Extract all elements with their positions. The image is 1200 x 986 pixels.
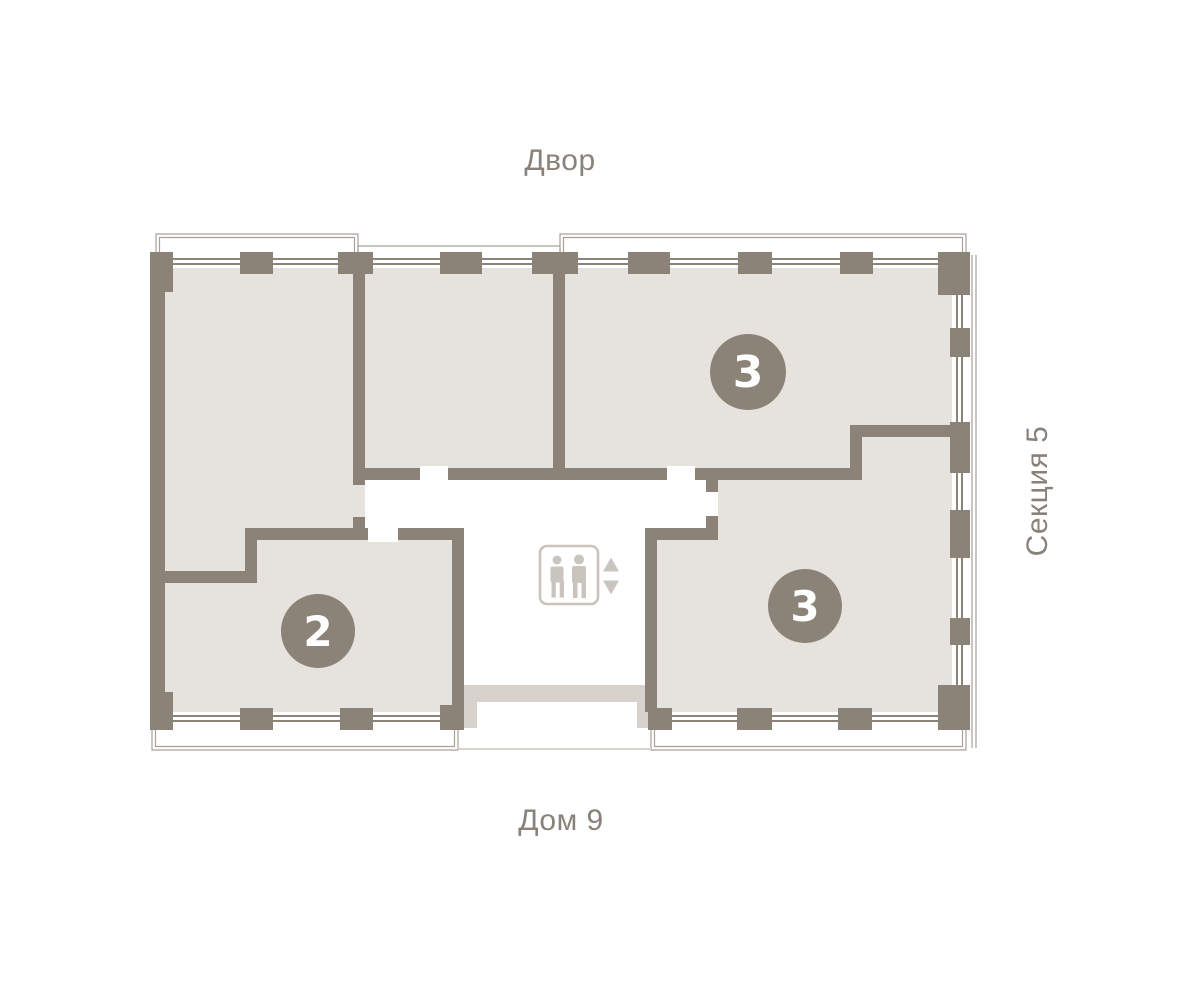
courtyard-label: Двор — [524, 144, 595, 178]
floorplan-page: 3 2 3 Двор Дом 9 Секция 5 — [0, 0, 1200, 986]
apartment-badge-2-bottom-left[interactable]: 2 — [281, 594, 355, 668]
house-label: Дом 9 — [518, 804, 603, 838]
section-label: Секция 5 — [1021, 426, 1055, 557]
floorplan-drawing — [0, 0, 1200, 986]
apartment-badge-3-top-right[interactable]: 3 — [710, 334, 786, 410]
apartment-badge-3-bottom-right[interactable]: 3 — [768, 569, 842, 643]
entrance-porch — [462, 685, 648, 728]
